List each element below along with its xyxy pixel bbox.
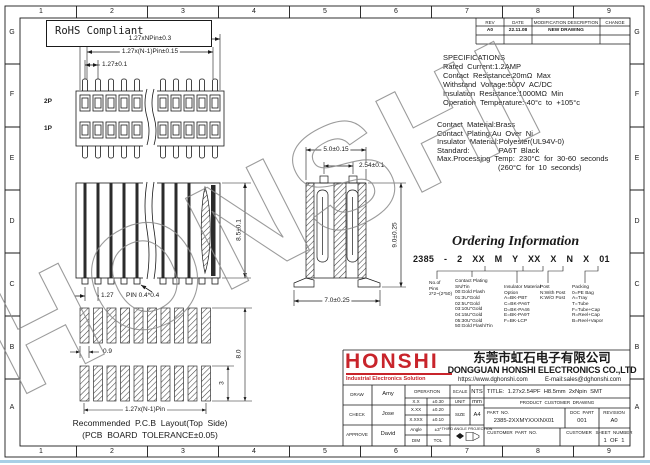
- grid-row-label: E: [635, 155, 640, 163]
- approve-label: APPROVE: [346, 432, 368, 437]
- dim-height: 8.5±0.1: [235, 219, 242, 241]
- revision-value: A0: [610, 418, 617, 425]
- rev-value: A0: [487, 28, 493, 34]
- sheet-number-value: 1 OF 1: [604, 438, 625, 445]
- dim-pitch-127: 1.27: [99, 292, 116, 299]
- drawing-sheet: HONSHI 1 2 3 4 5 6 7 8 9 1 2 3 4 5 6 7 8…: [0, 0, 650, 465]
- rev-header-change: CHANGE: [605, 20, 624, 25]
- grid-row-label: E: [10, 155, 15, 163]
- pcb-caption: Recommended P.C.B Layout(Top Side): [73, 419, 228, 429]
- top-view: [75, 181, 251, 301]
- grid-col-label: 6: [394, 8, 398, 16]
- grid-col-label: 3: [181, 8, 185, 16]
- company-name-cn: 东莞市虹石电子有限公司: [473, 351, 611, 365]
- ordering-post-options: Post N:With Post K:W/O Post: [540, 285, 565, 302]
- draw-name: Amy: [382, 391, 394, 398]
- grid-col-label: 5: [323, 8, 327, 16]
- dim-front-overall: 1.27xNPin±0.3: [127, 35, 174, 42]
- dim-pad-width: 0.9: [101, 348, 114, 355]
- dim-section-height: 9.0±0.25: [391, 222, 398, 247]
- grid-col-label: 9: [607, 8, 611, 16]
- line-art: [0, 0, 650, 465]
- part-no-label: PART NO.: [487, 410, 509, 415]
- projection-diamond-icon: [456, 433, 464, 439]
- grid-row-label: G: [634, 29, 639, 37]
- dim-front-n1: 1.27x(N-1)Pin±0.15: [120, 48, 180, 55]
- company-email: E-mail:sales@dghonshi.com: [545, 377, 621, 384]
- tol-key: X.XXX: [409, 417, 422, 422]
- unit-value: mm: [472, 399, 482, 406]
- company-web: https://www.dghonshi.com: [458, 377, 528, 384]
- operation-label: OPERATION: [414, 389, 440, 394]
- tol-key: Angle: [410, 427, 422, 432]
- tol-key: DIM: [412, 438, 420, 443]
- dim-section-foot: 7.0±0.25: [322, 297, 351, 304]
- rev-description: NEW DRAWING: [548, 28, 584, 34]
- grid-row-label: D: [9, 218, 14, 226]
- projection-cone-icon: [466, 433, 479, 441]
- grid-col-label: 8: [536, 8, 540, 16]
- revision-label: REVISION: [603, 410, 625, 415]
- scale-label: SCALE: [453, 389, 468, 394]
- doc-part-label: DOC PART: [570, 410, 594, 415]
- grid-row-label: F: [10, 91, 14, 99]
- dim-pad-height: 3: [218, 381, 225, 385]
- ordering-title: Ordering Information: [452, 234, 579, 250]
- grid-col-label: 4: [252, 448, 256, 456]
- grid-col-label: 2: [110, 8, 114, 16]
- part-no-value: 2385-2XXMYXXXNX01: [494, 418, 555, 425]
- dim-pin-size: PIN 0.4*0.4: [124, 292, 161, 299]
- grid-col-label: 6: [394, 448, 398, 456]
- grid-row-label: B: [635, 344, 640, 352]
- rev-date: 22.11.08: [509, 28, 527, 34]
- grid-col-label: 3: [181, 448, 185, 456]
- dim-section-width: 5.0±0.15: [321, 146, 350, 153]
- grid-row-label: G: [9, 29, 14, 37]
- product-label: PRODUCT CUSTOMER DRAWING: [520, 400, 594, 405]
- rev-header-date: DATE: [512, 20, 524, 25]
- unit-label: UNIT: [455, 399, 466, 404]
- spec-line: Operation Temperature:-40°c to +105°c: [443, 99, 580, 108]
- grid-col-label: 1: [39, 8, 43, 16]
- customer-label: CUSTOMER: [566, 430, 592, 435]
- grid-row-label: C: [634, 281, 639, 289]
- grid-row-label: B: [10, 344, 15, 352]
- size-label: SIZE: [455, 412, 465, 417]
- grid-row-label: C: [9, 281, 14, 289]
- grid-row-label: A: [10, 404, 15, 412]
- logo-underline: [346, 373, 452, 375]
- company-tagline: Industrial Electronics Solution: [346, 376, 425, 382]
- grid-row-label: A: [635, 404, 640, 412]
- check-label: CHECK: [349, 412, 365, 417]
- tol-val: ±0.20: [432, 407, 443, 412]
- tol-val: ±3°: [435, 427, 442, 432]
- rev-header-rev: REV: [485, 20, 494, 25]
- grid-col-label: 8: [536, 448, 540, 456]
- ordering-plating-options: Contact Plating SN/Tin 00:Gold Flash 01:…: [455, 279, 493, 330]
- material-line: (260°C for 10 seconds): [498, 164, 581, 173]
- projection-label: THIRD ANGLE PROJECTION: [442, 427, 493, 431]
- company-name-en: DONGGUAN HONSHI ELECTRONICS CO.,LTD: [448, 365, 637, 375]
- company-logo: HONSHI: [345, 350, 439, 374]
- sheet-number-label: SHEET NUMBER: [596, 430, 633, 435]
- grid-col-label: 9: [607, 448, 611, 456]
- doc-part-value: 001: [577, 418, 587, 425]
- drawing-title: TITLE: 1.27x2.54PF H8.5mm 2xNpin SMT: [487, 389, 602, 396]
- dim-pcb-pitch: 1.27x(N-1)Pin: [123, 406, 167, 413]
- grid-col-label: 2: [110, 448, 114, 456]
- tol-key: X.X: [412, 399, 419, 404]
- approve-name: David: [381, 431, 396, 438]
- grid-row-label: F: [635, 91, 639, 99]
- pcb-caption-tolerance: (PCB BOARD TOLERANCE±0.05): [82, 431, 218, 441]
- grid-row-label: D: [634, 218, 639, 226]
- tol-val: TOL: [434, 438, 443, 443]
- grid-col-label: 5: [323, 448, 327, 456]
- ordering-packing-options: Packing 0=PE Bag A=Tray T=Tube F=Tube+Ca…: [572, 285, 603, 325]
- row-label-1p: 1P: [44, 125, 52, 132]
- grid-col-label: 7: [465, 448, 469, 456]
- grid-col-label: 4: [252, 8, 256, 16]
- check-name: Jose: [382, 411, 394, 418]
- size-value: A4: [473, 412, 480, 419]
- ordering-pins-options: No.of Pins 2*2~(2*50): [429, 281, 452, 298]
- ordering-code: 2385 - 2 XX M Y XX X N X 01: [413, 254, 610, 264]
- grid-col-label: 7: [465, 8, 469, 16]
- section-view: [294, 147, 406, 306]
- tol-val: ±0.10: [432, 417, 443, 422]
- rev-header-description: MODIFICATION DESCRIPTION: [534, 20, 598, 25]
- pcb-layout: [80, 308, 211, 401]
- customer-part-no-label: CUSTOMER PART NO.: [487, 430, 537, 435]
- scale-value: NTS: [471, 389, 483, 396]
- row-label-2p: 2P: [44, 98, 52, 105]
- draw-label: DRAW: [350, 392, 364, 397]
- grid-col-label: 1: [39, 448, 43, 456]
- ordering-insulator-options: Insulator Material Option A=BK-PBT C=BK-…: [504, 285, 541, 325]
- tol-key: X.XX: [411, 407, 421, 412]
- dim-front-pitch: 1.27±0.1: [100, 61, 129, 68]
- dim-pad-span: 8.0: [235, 349, 242, 358]
- window-bottom-edge: [0, 460, 650, 463]
- dim-section-pitch: 2.54±0.1: [357, 162, 386, 169]
- tol-val: ±0.30: [432, 399, 443, 404]
